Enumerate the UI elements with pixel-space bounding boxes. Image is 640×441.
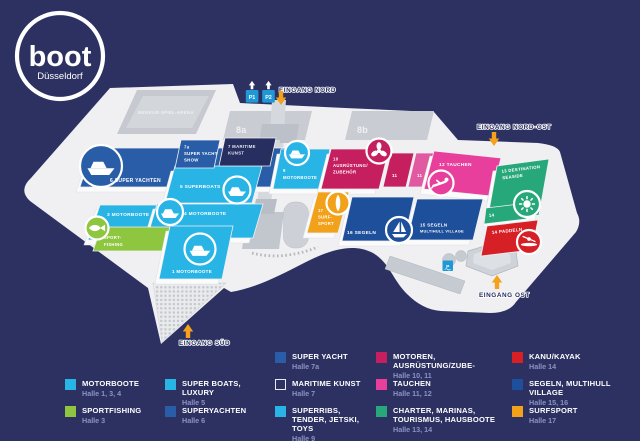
- sportfishing-label: SPORT-: [104, 235, 122, 240]
- hall-8a-label: 8a: [236, 125, 247, 135]
- hall-9-label: 9: [283, 168, 286, 173]
- svg-text:MULTIHULL VILLAGE: MULTIHULL VILLAGE: [420, 230, 464, 234]
- parking-icon: P1: [246, 90, 259, 103]
- hall-8b-label: 8b: [357, 125, 368, 135]
- hall-11-west-label: 11: [392, 173, 398, 178]
- parking-icon: P: [443, 261, 454, 272]
- sun-icon: [514, 191, 540, 217]
- hall-14-label: 14: [489, 212, 495, 218]
- arena-label: MERKUR-SPIEL-ARENA: [138, 110, 194, 115]
- tower-cylinder: [284, 202, 309, 248]
- venue-map: 6 SUPER YACHTEN 7a SUPER YACHT SHOW 7 MA…: [0, 0, 640, 441]
- logo: boot Düsseldorf: [17, 13, 103, 99]
- svg-text:ZUBEHÖR: ZUBEHÖR: [333, 170, 357, 175]
- svg-text:FISHING: FISHING: [104, 242, 123, 247]
- hall-10-label: 10: [333, 157, 339, 162]
- hall-16-label: 16 SEGELN: [347, 230, 376, 236]
- boot-duesseldorf-map-page: 6 SUPER YACHTEN 7a SUPER YACHT SHOW 7 MA…: [0, 0, 640, 441]
- svg-text:SUPER YACHT: SUPER YACHT: [184, 151, 218, 156]
- east-dome-2: [456, 251, 467, 262]
- up-arrow-icon: [265, 81, 271, 89]
- hall-1-label: 1 MOTORBOOTE: [172, 269, 212, 274]
- hall-5-label: 5 SUPERBOATS: [180, 184, 221, 190]
- motorboat-icon: [185, 234, 216, 265]
- entrance-nordost-label: EINGANG NORD-OST: [477, 124, 551, 131]
- hall-17-label: 17: [318, 208, 324, 213]
- svg-text:SPORT: SPORT: [318, 221, 334, 226]
- svg-text:P2: P2: [265, 95, 272, 101]
- kayak-icon: [517, 230, 541, 254]
- svg-text:MOTORBOOTE: MOTORBOOTE: [283, 175, 317, 180]
- hall-3-label: 3 MOTORBOOTE: [107, 212, 150, 218]
- motorboat-icon: [157, 199, 183, 225]
- entrance-sued-label: EINGANG SÜD: [179, 338, 230, 347]
- svg-text:AUSRÜSTUNG/: AUSRÜSTUNG/: [333, 163, 368, 168]
- entrance-ost-label: EINGANG OST: [479, 292, 530, 299]
- diver-icon: [429, 171, 454, 196]
- entrance-arrow-icon: [183, 324, 193, 338]
- propeller-icon: [367, 139, 392, 164]
- hall-15-label: 15 SEGELN: [420, 223, 447, 228]
- hall-4-label: 4 MOTORBOOTE: [184, 211, 227, 217]
- hall-12-label: 12 TAUCHEN: [439, 162, 472, 168]
- svg-text:SHOW: SHOW: [184, 158, 199, 163]
- motorboat-icon: [224, 177, 251, 204]
- logo-brand: boot: [29, 41, 92, 73]
- svg-text:KUNST: KUNST: [228, 151, 244, 156]
- hall-15: [407, 199, 483, 240]
- svg-text:P1: P1: [249, 95, 256, 101]
- hall-7a-label: 7a: [184, 145, 190, 150]
- hall-11-east-label: 11: [417, 173, 423, 178]
- hall-7-label: 7 MARITIME: [228, 144, 256, 149]
- hall-6-label: 6 SUPER YACHTEN: [110, 178, 161, 184]
- entrance-nord-label: EINGANG NORD: [279, 87, 336, 94]
- parking-icon: P2: [262, 90, 275, 103]
- sailboat-icon: [386, 217, 412, 243]
- motorboat-icon: [285, 141, 309, 165]
- svg-text:SURF-: SURF-: [318, 215, 333, 220]
- up-arrow-icon: [249, 81, 255, 89]
- logo-city: Düsseldorf: [37, 71, 83, 82]
- surfboard-icon: [327, 192, 350, 215]
